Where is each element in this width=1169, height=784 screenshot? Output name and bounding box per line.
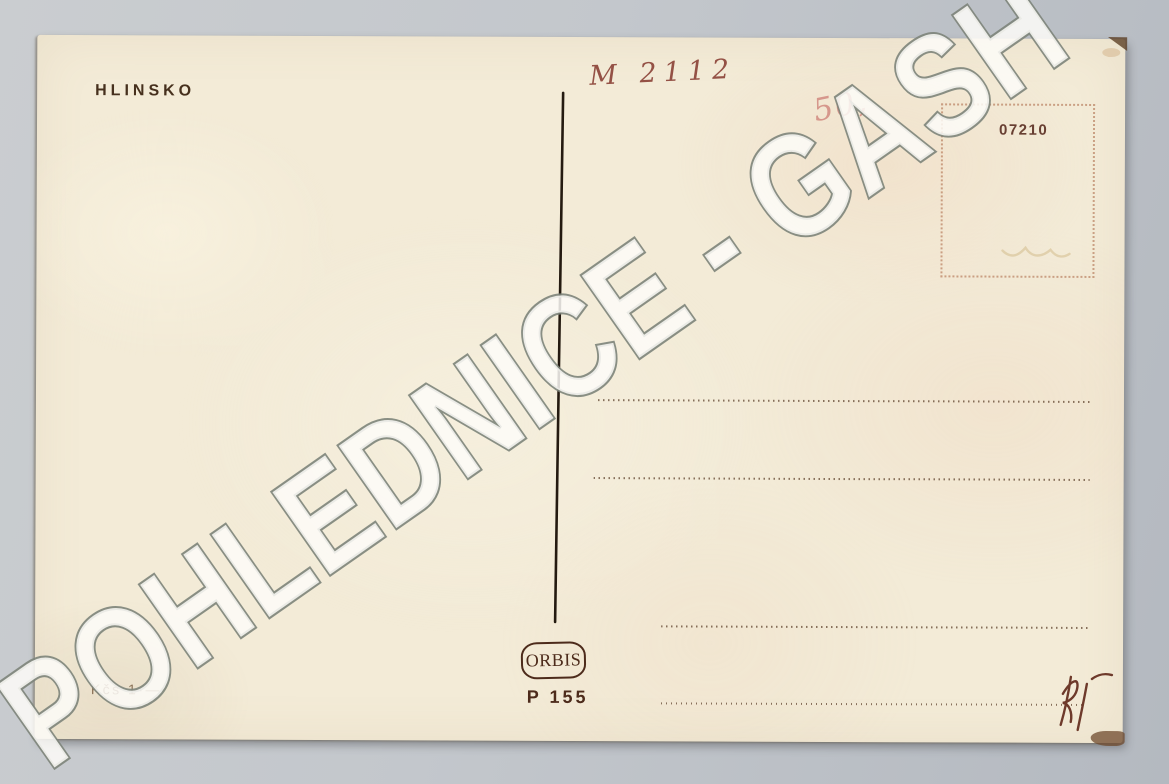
publisher-badge: ORBIS bbox=[521, 641, 587, 679]
corner-scribble bbox=[1061, 674, 1112, 730]
corner-crease-top-right bbox=[1102, 48, 1120, 57]
handwritten-catalog-number: M 2112 bbox=[589, 54, 737, 92]
stamp-serial-number: 07210 bbox=[999, 122, 1048, 139]
handwritten-price: 50, bbox=[810, 83, 871, 130]
corner-chip-bottom-right bbox=[1091, 731, 1125, 746]
address-line-3 bbox=[661, 625, 1089, 629]
publisher-badge-label: ORBIS bbox=[525, 649, 581, 671]
stamp-box: 07210 bbox=[940, 103, 1095, 278]
divider-line bbox=[555, 93, 563, 622]
location-title: HLINSKO bbox=[95, 82, 195, 100]
address-line-1 bbox=[598, 399, 1090, 403]
print-code: P 155 bbox=[527, 687, 589, 708]
address-line-2 bbox=[594, 477, 1090, 481]
price-imprint: Kčs 1·— bbox=[91, 681, 162, 697]
scanned-postcard-photo: HLINSKO M 2112 50, 07210 ORBIS P 1 bbox=[0, 0, 1169, 784]
postcard-back: HLINSKO M 2112 50, 07210 ORBIS P 1 bbox=[35, 35, 1126, 743]
address-line-4 bbox=[661, 702, 1086, 706]
